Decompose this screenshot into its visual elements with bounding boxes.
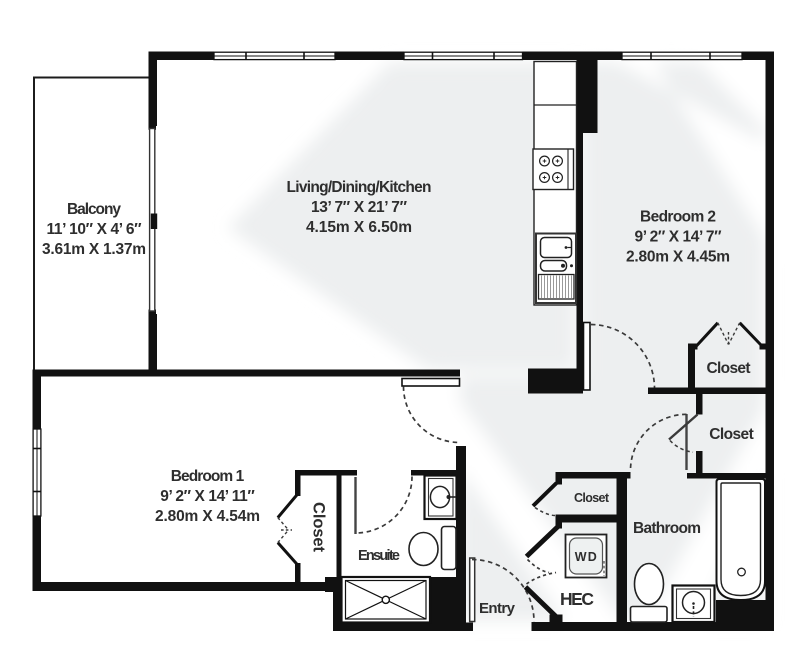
svg-text:4.15m X 6.50m: 4.15m X 6.50m [306, 219, 412, 236]
svg-text:WD: WD [575, 550, 597, 564]
svg-text:Ensuite: Ensuite [358, 548, 400, 564]
svg-text:HEC: HEC [560, 589, 594, 609]
svg-text:Entry: Entry [479, 600, 516, 617]
svg-text:Closet: Closet [310, 502, 328, 553]
svg-text:11’ 10″ X 4’ 6″: 11’ 10″ X 4’ 6″ [47, 221, 143, 238]
svg-text:Closet: Closet [574, 491, 610, 505]
svg-text:9’ 2″ X 14’ 11″: 9’ 2″ X 14’ 11″ [160, 488, 255, 505]
svg-text:13’ 7″ X 21’ 7″: 13’ 7″ X 21’ 7″ [311, 199, 408, 216]
svg-text:2.80m X 4.54m: 2.80m X 4.54m [155, 508, 260, 525]
svg-text:9’ 2″ X 14’ 7″: 9’ 2″ X 14’ 7″ [635, 229, 723, 246]
svg-text:3.61m X 1.37m: 3.61m X 1.37m [42, 241, 146, 258]
svg-text:Balcony: Balcony [67, 201, 121, 218]
svg-text:Closet: Closet [707, 360, 751, 377]
svg-text:Bathroom: Bathroom [633, 520, 701, 537]
svg-text:Closet: Closet [709, 426, 754, 443]
svg-text:2.80m X 4.45m: 2.80m X 4.45m [626, 249, 730, 266]
svg-text:Living/Dining/Kitchen: Living/Dining/Kitchen [287, 179, 432, 196]
svg-text:Bedroom 1: Bedroom 1 [171, 468, 245, 485]
svg-text:Bedroom 2: Bedroom 2 [640, 209, 716, 226]
